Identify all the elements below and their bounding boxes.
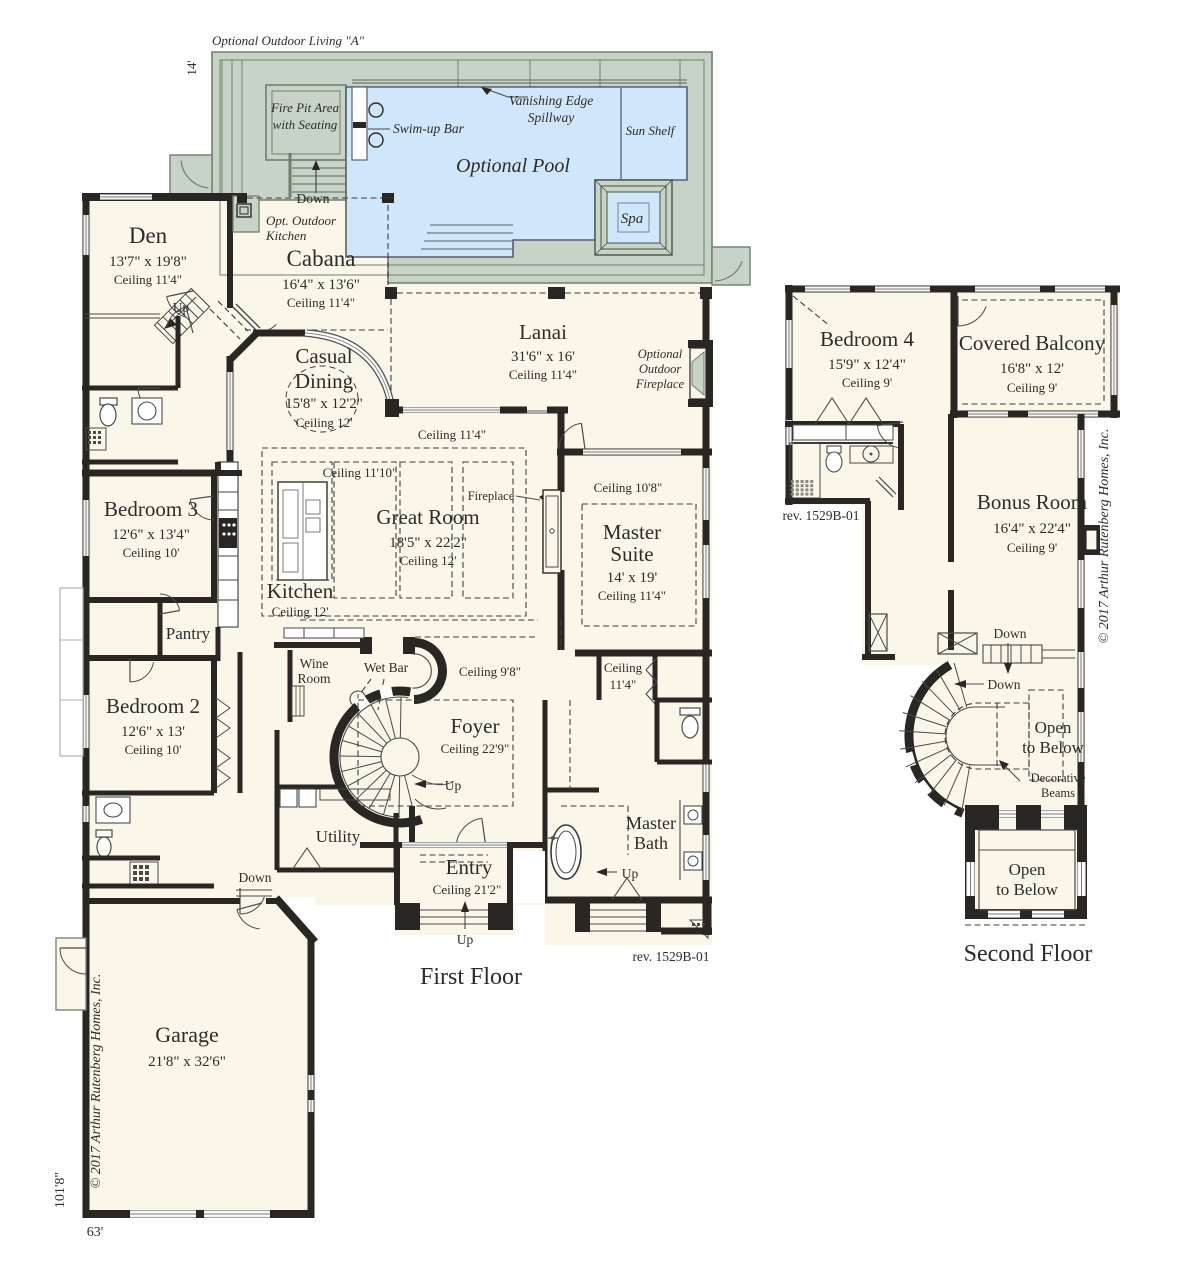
svg-text:Opt. Outdoor: Opt. Outdoor <box>266 213 337 228</box>
svg-text:Casual: Casual <box>295 344 352 368</box>
svg-text:Spa: Spa <box>621 211 644 227</box>
svg-text:Garage: Garage <box>155 1022 219 1047</box>
svg-text:Open: Open <box>1009 860 1046 879</box>
svg-text:Den: Den <box>129 223 168 248</box>
svg-text:18'5" x 22'2": 18'5" x 22'2" <box>389 535 467 551</box>
svg-text:Kitchen: Kitchen <box>265 228 306 243</box>
svg-text:Master: Master <box>626 813 676 833</box>
svg-text:Dining: Dining <box>295 369 354 393</box>
svg-text:Second Floor: Second Floor <box>964 941 1093 967</box>
svg-text:14': 14' <box>184 60 199 75</box>
svg-text:with Seating: with Seating <box>273 117 338 132</box>
svg-text:Optional: Optional <box>638 347 683 361</box>
svg-text:12'6" x 13': 12'6" x 13' <box>121 724 185 740</box>
svg-text:Ceiling 11'4": Ceiling 11'4" <box>418 427 486 442</box>
svg-text:Great Room: Great Room <box>376 505 479 529</box>
svg-text:Ceiling 12': Ceiling 12' <box>272 604 329 619</box>
svg-text:15'8" x 12'2": 15'8" x 12'2" <box>285 396 363 412</box>
svg-text:16'8" x 12': 16'8" x 12' <box>1000 361 1064 377</box>
svg-text:Cabana: Cabana <box>287 246 356 271</box>
svg-text:Ceiling 11'4": Ceiling 11'4" <box>287 295 355 310</box>
svg-text:to Below: to Below <box>996 880 1059 899</box>
svg-text:63': 63' <box>87 1225 104 1240</box>
svg-text:Bedroom 3: Bedroom 3 <box>104 497 198 521</box>
svg-text:16'4" x 13'6": 16'4" x 13'6" <box>282 277 360 293</box>
svg-text:Fireplace: Fireplace <box>635 377 685 391</box>
svg-text:Ceiling 11'4": Ceiling 11'4" <box>509 367 577 382</box>
svg-text:Ceiling 12': Ceiling 12' <box>296 415 353 430</box>
svg-text:Suite: Suite <box>610 542 653 566</box>
svg-text:Vanishing Edge: Vanishing Edge <box>509 93 593 108</box>
svg-text:Bedroom 2: Bedroom 2 <box>106 694 200 718</box>
svg-text:14' x 19': 14' x 19' <box>607 570 658 586</box>
svg-text:Outdoor: Outdoor <box>639 362 682 376</box>
svg-text:Utility: Utility <box>316 827 361 846</box>
svg-text:Covered Balcony: Covered Balcony <box>959 331 1106 355</box>
svg-text:Down: Down <box>239 870 272 885</box>
svg-text:Ceiling 22'9": Ceiling 22'9" <box>441 741 510 756</box>
svg-text:Kitchen: Kitchen <box>267 579 334 603</box>
svg-text:Ceiling 10': Ceiling 10' <box>125 742 182 757</box>
svg-text:15'9" x 12'4": 15'9" x 12'4" <box>828 357 906 373</box>
svg-text:101'8": 101'8" <box>53 1172 68 1208</box>
svg-text:Wine: Wine <box>300 656 329 671</box>
svg-text:Foyer: Foyer <box>451 714 500 738</box>
svg-text:Down: Down <box>994 626 1027 641</box>
svg-text:Ceiling 9': Ceiling 9' <box>1007 540 1057 555</box>
svg-text:Pantry: Pantry <box>166 624 211 643</box>
svg-text:Sun Shelf: Sun Shelf <box>626 123 677 138</box>
svg-text:Ceiling 10': Ceiling 10' <box>123 545 180 560</box>
svg-text:Beams: Beams <box>1041 786 1075 800</box>
svg-text:Ceiling 11'4": Ceiling 11'4" <box>598 588 666 603</box>
svg-text:© 2017 Arthur Rutenberg Homes,: © 2017 Arthur Rutenberg Homes, Inc. <box>89 974 104 1189</box>
svg-text:Room: Room <box>297 671 331 686</box>
svg-text:Ceiling 11'4": Ceiling 11'4" <box>114 272 182 287</box>
svg-text:31'6" x 16': 31'6" x 16' <box>511 349 575 365</box>
svg-text:Down: Down <box>988 677 1021 692</box>
svg-text:Ceiling 11'10": Ceiling 11'10" <box>323 465 398 480</box>
svg-text:Wet Bar: Wet Bar <box>364 660 409 675</box>
svg-text:Fireplace: Fireplace <box>468 489 515 503</box>
svg-text:Ceiling 9': Ceiling 9' <box>842 375 892 390</box>
svg-text:Entry: Entry <box>446 855 493 879</box>
svg-text:Up: Up <box>622 866 639 881</box>
svg-text:Ceiling 9': Ceiling 9' <box>1007 380 1057 395</box>
svg-text:Bonus Room: Bonus Room <box>977 490 1087 514</box>
svg-text:Ceiling 12': Ceiling 12' <box>400 553 457 568</box>
svg-text:Lanai: Lanai <box>519 320 567 344</box>
svg-text:© 2017 Arthur Rutenberg Homes,: © 2017 Arthur Rutenberg Homes, Inc. <box>1097 429 1112 644</box>
svg-text:11'4": 11'4" <box>610 677 637 692</box>
svg-text:Ceiling 10'8": Ceiling 10'8" <box>594 480 663 495</box>
svg-text:13'7" x 19'8": 13'7" x 19'8" <box>109 254 187 270</box>
svg-text:Ceiling 9'8": Ceiling 9'8" <box>459 664 521 679</box>
svg-text:12'6" x 13'4": 12'6" x 13'4" <box>112 527 190 543</box>
svg-text:21'8" x 32'6": 21'8" x 32'6" <box>148 1054 226 1070</box>
svg-text:Bedroom 4: Bedroom 4 <box>820 327 914 351</box>
svg-text:Spillway: Spillway <box>528 110 575 125</box>
svg-text:First Floor: First Floor <box>420 964 522 990</box>
svg-text:to Below: to Below <box>1022 738 1085 757</box>
svg-text:Fire Pit Area: Fire Pit Area <box>270 100 340 115</box>
svg-text:Decorative: Decorative <box>1031 771 1086 785</box>
svg-text:Swim-up Bar: Swim-up Bar <box>393 121 465 136</box>
svg-text:Ceiling: Ceiling <box>604 660 643 675</box>
svg-text:Bath: Bath <box>634 833 668 853</box>
svg-text:16'4" x 22'4": 16'4" x 22'4" <box>993 521 1071 537</box>
svg-text:Optional Outdoor Living "A": Optional Outdoor Living "A" <box>212 33 365 48</box>
svg-text:Up: Up <box>445 778 462 793</box>
svg-text:rev. 1529B-01: rev. 1529B-01 <box>632 949 709 964</box>
svg-text:rev. 1529B-01: rev. 1529B-01 <box>782 508 859 523</box>
svg-text:Up: Up <box>457 932 474 947</box>
svg-text:Master: Master <box>603 520 661 544</box>
svg-text:Optional Pool: Optional Pool <box>456 155 570 177</box>
svg-text:Ceiling 21'2": Ceiling 21'2" <box>433 882 502 897</box>
svg-text:Open: Open <box>1035 718 1072 737</box>
